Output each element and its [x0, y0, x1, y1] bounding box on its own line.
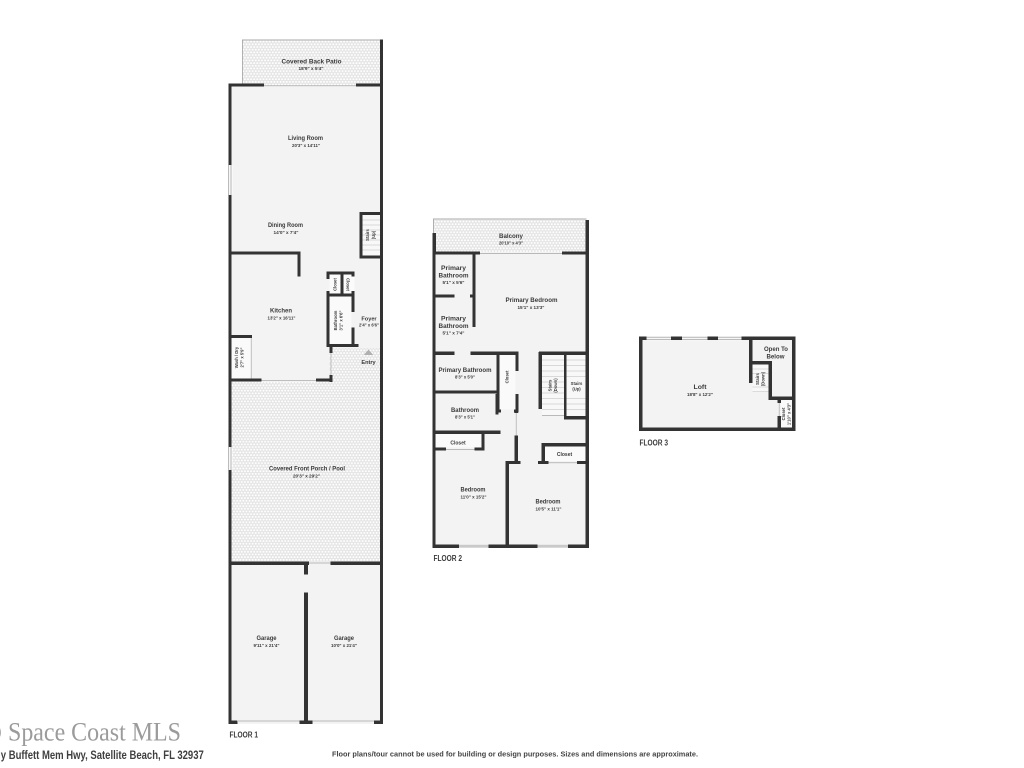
svg-text:20'3" x 29'2": 20'3" x 29'2" [293, 474, 320, 479]
svg-text:Wash / Dry: Wash / Dry [234, 346, 239, 368]
svg-text:FLOOR 1: FLOOR 1 [230, 731, 259, 740]
svg-text:Bedroom: Bedroom [461, 487, 486, 494]
svg-text:2'4" x 6'6": 2'4" x 6'6" [359, 323, 379, 328]
svg-text:Closet: Closet [557, 452, 573, 458]
svg-text:9'11" x 21'4": 9'11" x 21'4" [254, 643, 280, 648]
svg-text:(Down): (Down) [553, 378, 558, 393]
svg-text:Closet: Closet [332, 278, 337, 291]
svg-text:FLOOR 2: FLOOR 2 [434, 554, 463, 563]
svg-text:FLOOR 3: FLOOR 3 [640, 439, 669, 448]
svg-text:Stairs: Stairs [365, 229, 370, 241]
svg-text:2'7" x 5'9": 2'7" x 5'9" [240, 348, 245, 368]
svg-text:Closet: Closet [505, 370, 510, 383]
svg-text:10'0" x 21'4": 10'0" x 21'4" [331, 643, 357, 648]
svg-text:5'1" x 7'4": 5'1" x 7'4" [443, 331, 465, 336]
svg-text:Closet: Closet [781, 407, 786, 420]
svg-text:Dining Room: Dining Room [268, 222, 303, 229]
svg-text:Closet: Closet [450, 441, 466, 447]
svg-text:Bathroom: Bathroom [451, 407, 479, 414]
svg-text:20'3" x 14'11": 20'3" x 14'11" [292, 143, 320, 148]
svg-text:Loft: Loft [694, 384, 708, 391]
svg-text:Primary: Primary [441, 265, 466, 272]
svg-text:Space Coast MLS: Space Coast MLS [8, 718, 181, 747]
svg-text:1'10" x 4'3": 1'10" x 4'3" [787, 403, 792, 425]
svg-text:Below: Below [767, 354, 786, 361]
svg-text:(Up): (Up) [371, 230, 376, 239]
svg-text:Bathroom: Bathroom [439, 273, 469, 280]
svg-text:Entry: Entry [361, 360, 376, 366]
svg-text:Stairs: Stairs [571, 381, 583, 386]
svg-text:Stairs: Stairs [755, 373, 760, 385]
svg-text:Primary Bedroom: Primary Bedroom [506, 297, 558, 304]
svg-text:18'8" x 12'2": 18'8" x 12'2" [687, 392, 713, 397]
svg-text:20'10" x 4'3": 20'10" x 4'3" [499, 241, 523, 246]
svg-text:Living Room: Living Room [288, 135, 323, 142]
svg-text:Floor plans/tour cannot be use: Floor plans/tour cannot be used for buil… [332, 750, 698, 759]
svg-text:8'3" x 5'0": 8'3" x 5'0" [455, 375, 475, 380]
svg-text:Bathroom: Bathroom [439, 323, 469, 330]
svg-text:Bedroom: Bedroom [536, 499, 561, 506]
svg-text:Kitchen: Kitchen [270, 308, 292, 315]
svg-text:14'0" x 7'4": 14'0" x 7'4" [274, 230, 299, 235]
svg-text:(Down): (Down) [761, 371, 766, 386]
svg-text:y Buffett Mem Hwy, Satellite B: y Buffett Mem Hwy, Satellite Beach, FL 3… [1, 748, 204, 762]
svg-text:Covered Front Porch / Pool: Covered Front Porch / Pool [269, 466, 345, 473]
svg-text:13'2" x 16'11": 13'2" x 16'11" [268, 316, 296, 321]
svg-text:10'5" x 11'1": 10'5" x 11'1" [536, 507, 562, 512]
svg-text:Closet: Closet [345, 278, 350, 291]
svg-text:18'9" x 5'4": 18'9" x 5'4" [299, 66, 324, 71]
svg-text:5'1" x 5'6": 5'1" x 5'6" [443, 280, 465, 285]
svg-text:Bathroom: Bathroom [333, 310, 338, 330]
svg-text:Primary Bathroom: Primary Bathroom [439, 367, 492, 374]
svg-text:15'1" x 13'3": 15'1" x 13'3" [518, 305, 545, 310]
svg-text:Balcony: Balcony [499, 233, 523, 240]
svg-text:Garage: Garage [334, 635, 354, 642]
svg-text:Covered Back Patio: Covered Back Patio [282, 59, 342, 66]
svg-text:Stairs: Stairs [548, 379, 553, 391]
svg-text:Open To: Open To [764, 346, 788, 353]
svg-text:11'0" x 15'2": 11'0" x 15'2" [461, 495, 487, 500]
svg-text:8'3" x 5'1": 8'3" x 5'1" [455, 415, 475, 420]
svg-text:Garage: Garage [257, 635, 277, 642]
svg-text:3'1" x 6'6": 3'1" x 6'6" [339, 311, 344, 331]
svg-text:(Up): (Up) [572, 387, 581, 392]
svg-text:Primary: Primary [441, 316, 466, 323]
